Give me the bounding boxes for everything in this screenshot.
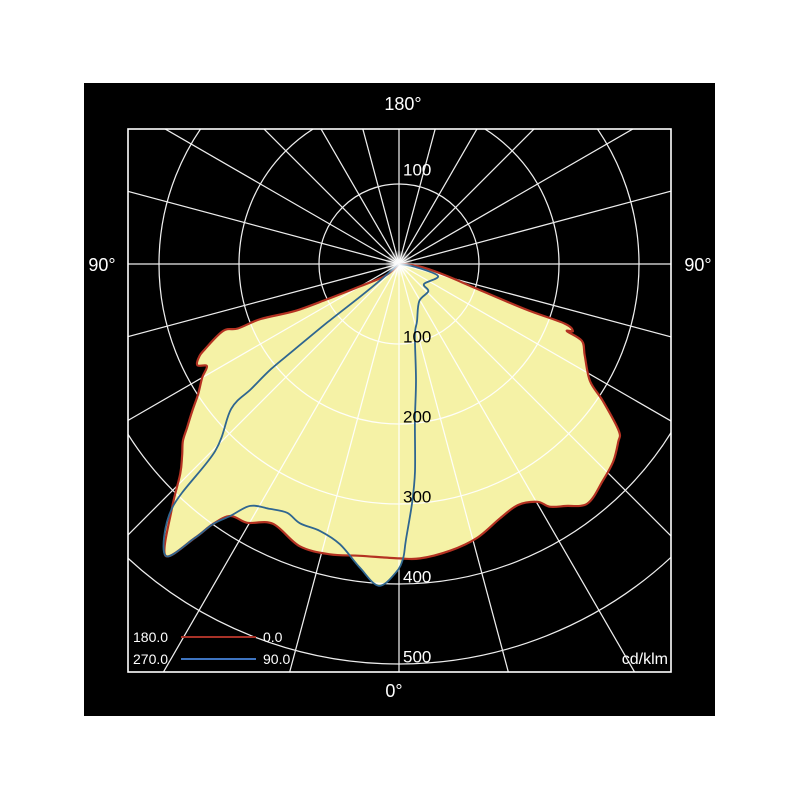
polar-chart [0,0,800,800]
legend-row: 180.00.0 [133,626,290,648]
legend-plane-left-label: 180.0 [133,629,181,645]
angle-label-right: 90° [684,256,711,274]
legend-plane-right-label: 90.0 [263,651,290,667]
radial-tick-label: 100 [403,162,431,179]
legend-plane-left-label: 270.0 [133,651,181,667]
legend: 180.00.0270.090.0 [133,626,290,670]
legend-line-swatch [181,658,256,660]
radial-tick-label: 100 [403,329,431,346]
pole-glow [385,250,413,278]
radial-tick-label: 300 [403,489,431,506]
legend-plane-right-label: 0.0 [263,629,282,645]
radial-tick-label: 500 [403,649,431,666]
legend-row: 270.090.0 [133,648,290,670]
radial-tick-label: 400 [403,569,431,586]
unit-label: cd/klm [622,652,668,668]
legend-line-swatch [181,636,256,638]
angle-label-bottom: 0° [385,682,402,700]
photometric-diagram: 180° 90° 90° 0° cd/klm 10010020030040050… [0,0,800,800]
angle-label-left: 90° [88,256,115,274]
angle-label-top: 180° [384,95,421,113]
radial-tick-label: 200 [403,409,431,426]
